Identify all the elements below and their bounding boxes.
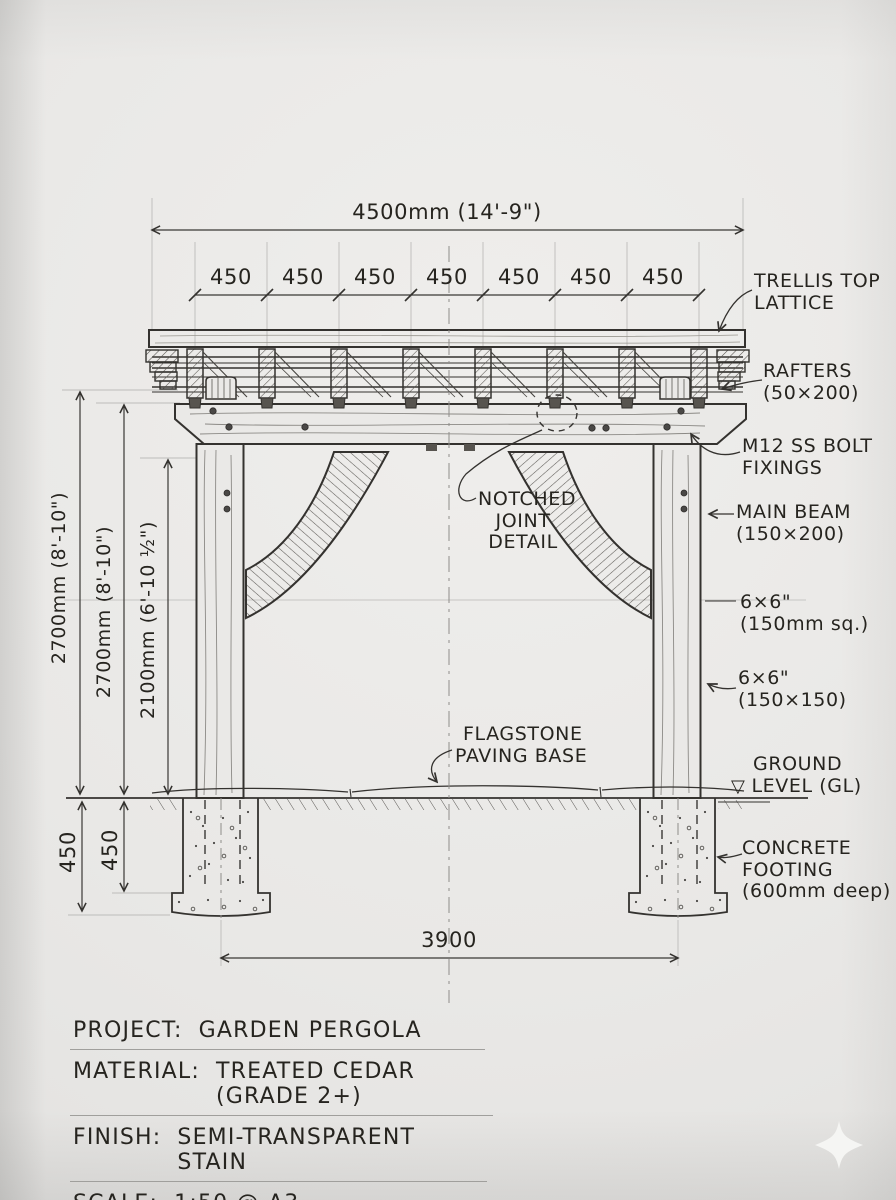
dim-footing-inner: 450 bbox=[99, 829, 123, 871]
purlin-lines bbox=[152, 357, 743, 392]
callout-trellis: TRELLIS TOP LATTICE bbox=[754, 271, 880, 314]
title-value: GARDEN PERGOLA bbox=[199, 1018, 422, 1043]
title-value: SEMI-TRANSPARENT STAIN bbox=[177, 1125, 487, 1175]
rafters bbox=[187, 349, 707, 408]
callout-flagstone: FLAGSTONE PAVING BASE bbox=[455, 724, 587, 767]
dim-height-beam: 2700mm (8'-10") bbox=[94, 526, 116, 698]
main-beam bbox=[175, 404, 746, 451]
concrete-footing-left bbox=[172, 798, 270, 918]
title-key: PROJECT: bbox=[73, 1018, 183, 1043]
tenon-tab bbox=[464, 444, 475, 451]
callout-notched-joint: NOTCHED JOINT DETAIL bbox=[478, 489, 568, 554]
dim-bay: 450 bbox=[421, 266, 473, 290]
title-key: SCALE: bbox=[73, 1191, 158, 1200]
title-row-project: PROJECT: GARDEN PERGOLA bbox=[70, 1016, 485, 1050]
title-row-finish: FINISH: SEMI-TRANSPARENT STAIN bbox=[70, 1123, 487, 1182]
title-row-scale: SCALE: 1:50 @ A3 bbox=[70, 1189, 475, 1200]
callout-rafters: RAFTERS (50×200) bbox=[763, 361, 859, 404]
dim-bay: 450 bbox=[565, 266, 617, 290]
dim-bay: 450 bbox=[637, 266, 689, 290]
dim-bay: 450 bbox=[493, 266, 545, 290]
dim-footing-outer: 450 bbox=[57, 831, 81, 873]
ground-and-footings bbox=[66, 786, 808, 918]
sparkle-icon bbox=[815, 1121, 863, 1169]
blueprint-page: 4500mm (14'-9") 450 450 450 450 450 450 … bbox=[0, 0, 896, 1200]
dim-bay: 450 bbox=[349, 266, 401, 290]
tenon-tab bbox=[426, 444, 437, 451]
cornice-left bbox=[146, 350, 178, 389]
title-row-material: MATERIAL: TREATED CEDAR (GRADE 2+) bbox=[70, 1057, 493, 1116]
dim-bay: 450 bbox=[277, 266, 329, 290]
concrete-footing-right bbox=[629, 798, 727, 918]
title-key: FINISH: bbox=[73, 1125, 161, 1175]
dim-height-overall: 2700mm (8'-10") bbox=[49, 492, 71, 664]
dim-bay: 450 bbox=[205, 266, 257, 290]
bay-guides bbox=[195, 242, 699, 350]
title-value: 1:50 @ A3 bbox=[174, 1191, 299, 1200]
callout-post-metric: 6×6" (150×150) bbox=[738, 668, 847, 711]
callout-ground-level: GROUND ▽LEVEL (GL) bbox=[731, 754, 862, 797]
ground-level-symbol: ▽ bbox=[731, 776, 745, 797]
title-key: MATERIAL: bbox=[73, 1059, 200, 1109]
trellis-top bbox=[146, 330, 749, 408]
callout-post-imperial: 6×6" (150mm sq.) bbox=[740, 592, 869, 635]
title-value: TREATED CEDAR (GRADE 2+) bbox=[216, 1059, 493, 1109]
dim-footing-span: 3900 bbox=[399, 929, 499, 953]
callout-main-beam: MAIN BEAM (150×200) bbox=[736, 502, 851, 545]
callout-bolt-fixings: M12 SS BOLT FIXINGS bbox=[742, 436, 873, 479]
title-block: PROJECT: GARDEN PERGOLA MATERIAL: TREATE… bbox=[70, 1016, 493, 1200]
dim-overall-width: 4500mm (14'-9") bbox=[347, 201, 547, 225]
dim-height-clear: 2100mm (6'-10 ½") bbox=[138, 521, 160, 719]
beam-end-block-left bbox=[206, 377, 236, 399]
beam-end-block-right bbox=[660, 377, 690, 399]
callout-concrete-footing: CONCRETE FOOTING (600mm deep) bbox=[742, 838, 891, 903]
